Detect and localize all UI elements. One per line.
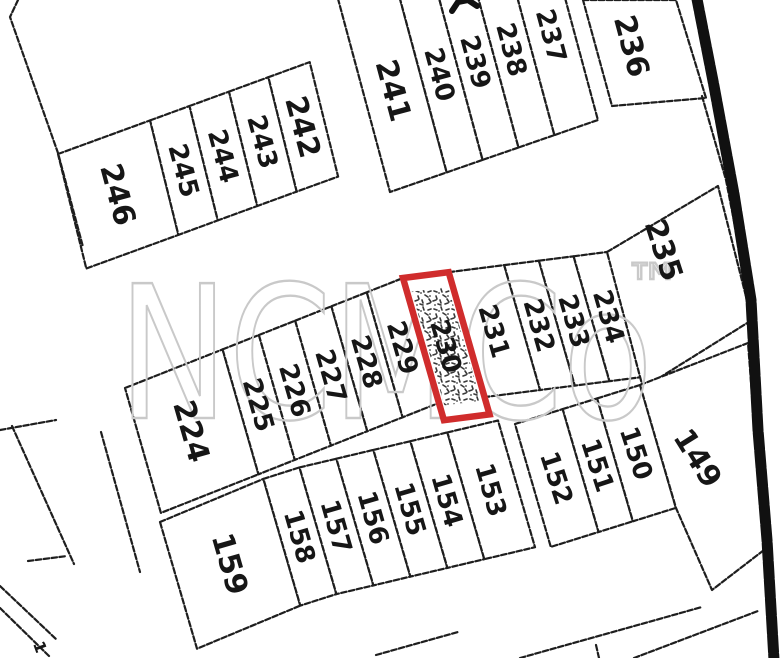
left-scrap-3 (28, 556, 67, 561)
bottom-block-line-3 (634, 611, 758, 658)
plat-map-page: NCMCo™ 246245244243242241240239238237224… (0, 0, 782, 658)
bottom-block-line-2 (520, 607, 702, 658)
bottom-block-line-1 (376, 632, 458, 655)
bottom-left-line-1 (0, 586, 57, 640)
bottom-block-tick (596, 645, 599, 658)
left-scrap-2 (12, 426, 74, 564)
plat-map-svg: NCMCo™ 246245244243242241240239238237224… (0, 0, 782, 658)
partial-lot-label-1: 1 (29, 639, 51, 656)
outer-boundary-left (10, 0, 83, 247)
left-scrap-1 (0, 420, 56, 430)
